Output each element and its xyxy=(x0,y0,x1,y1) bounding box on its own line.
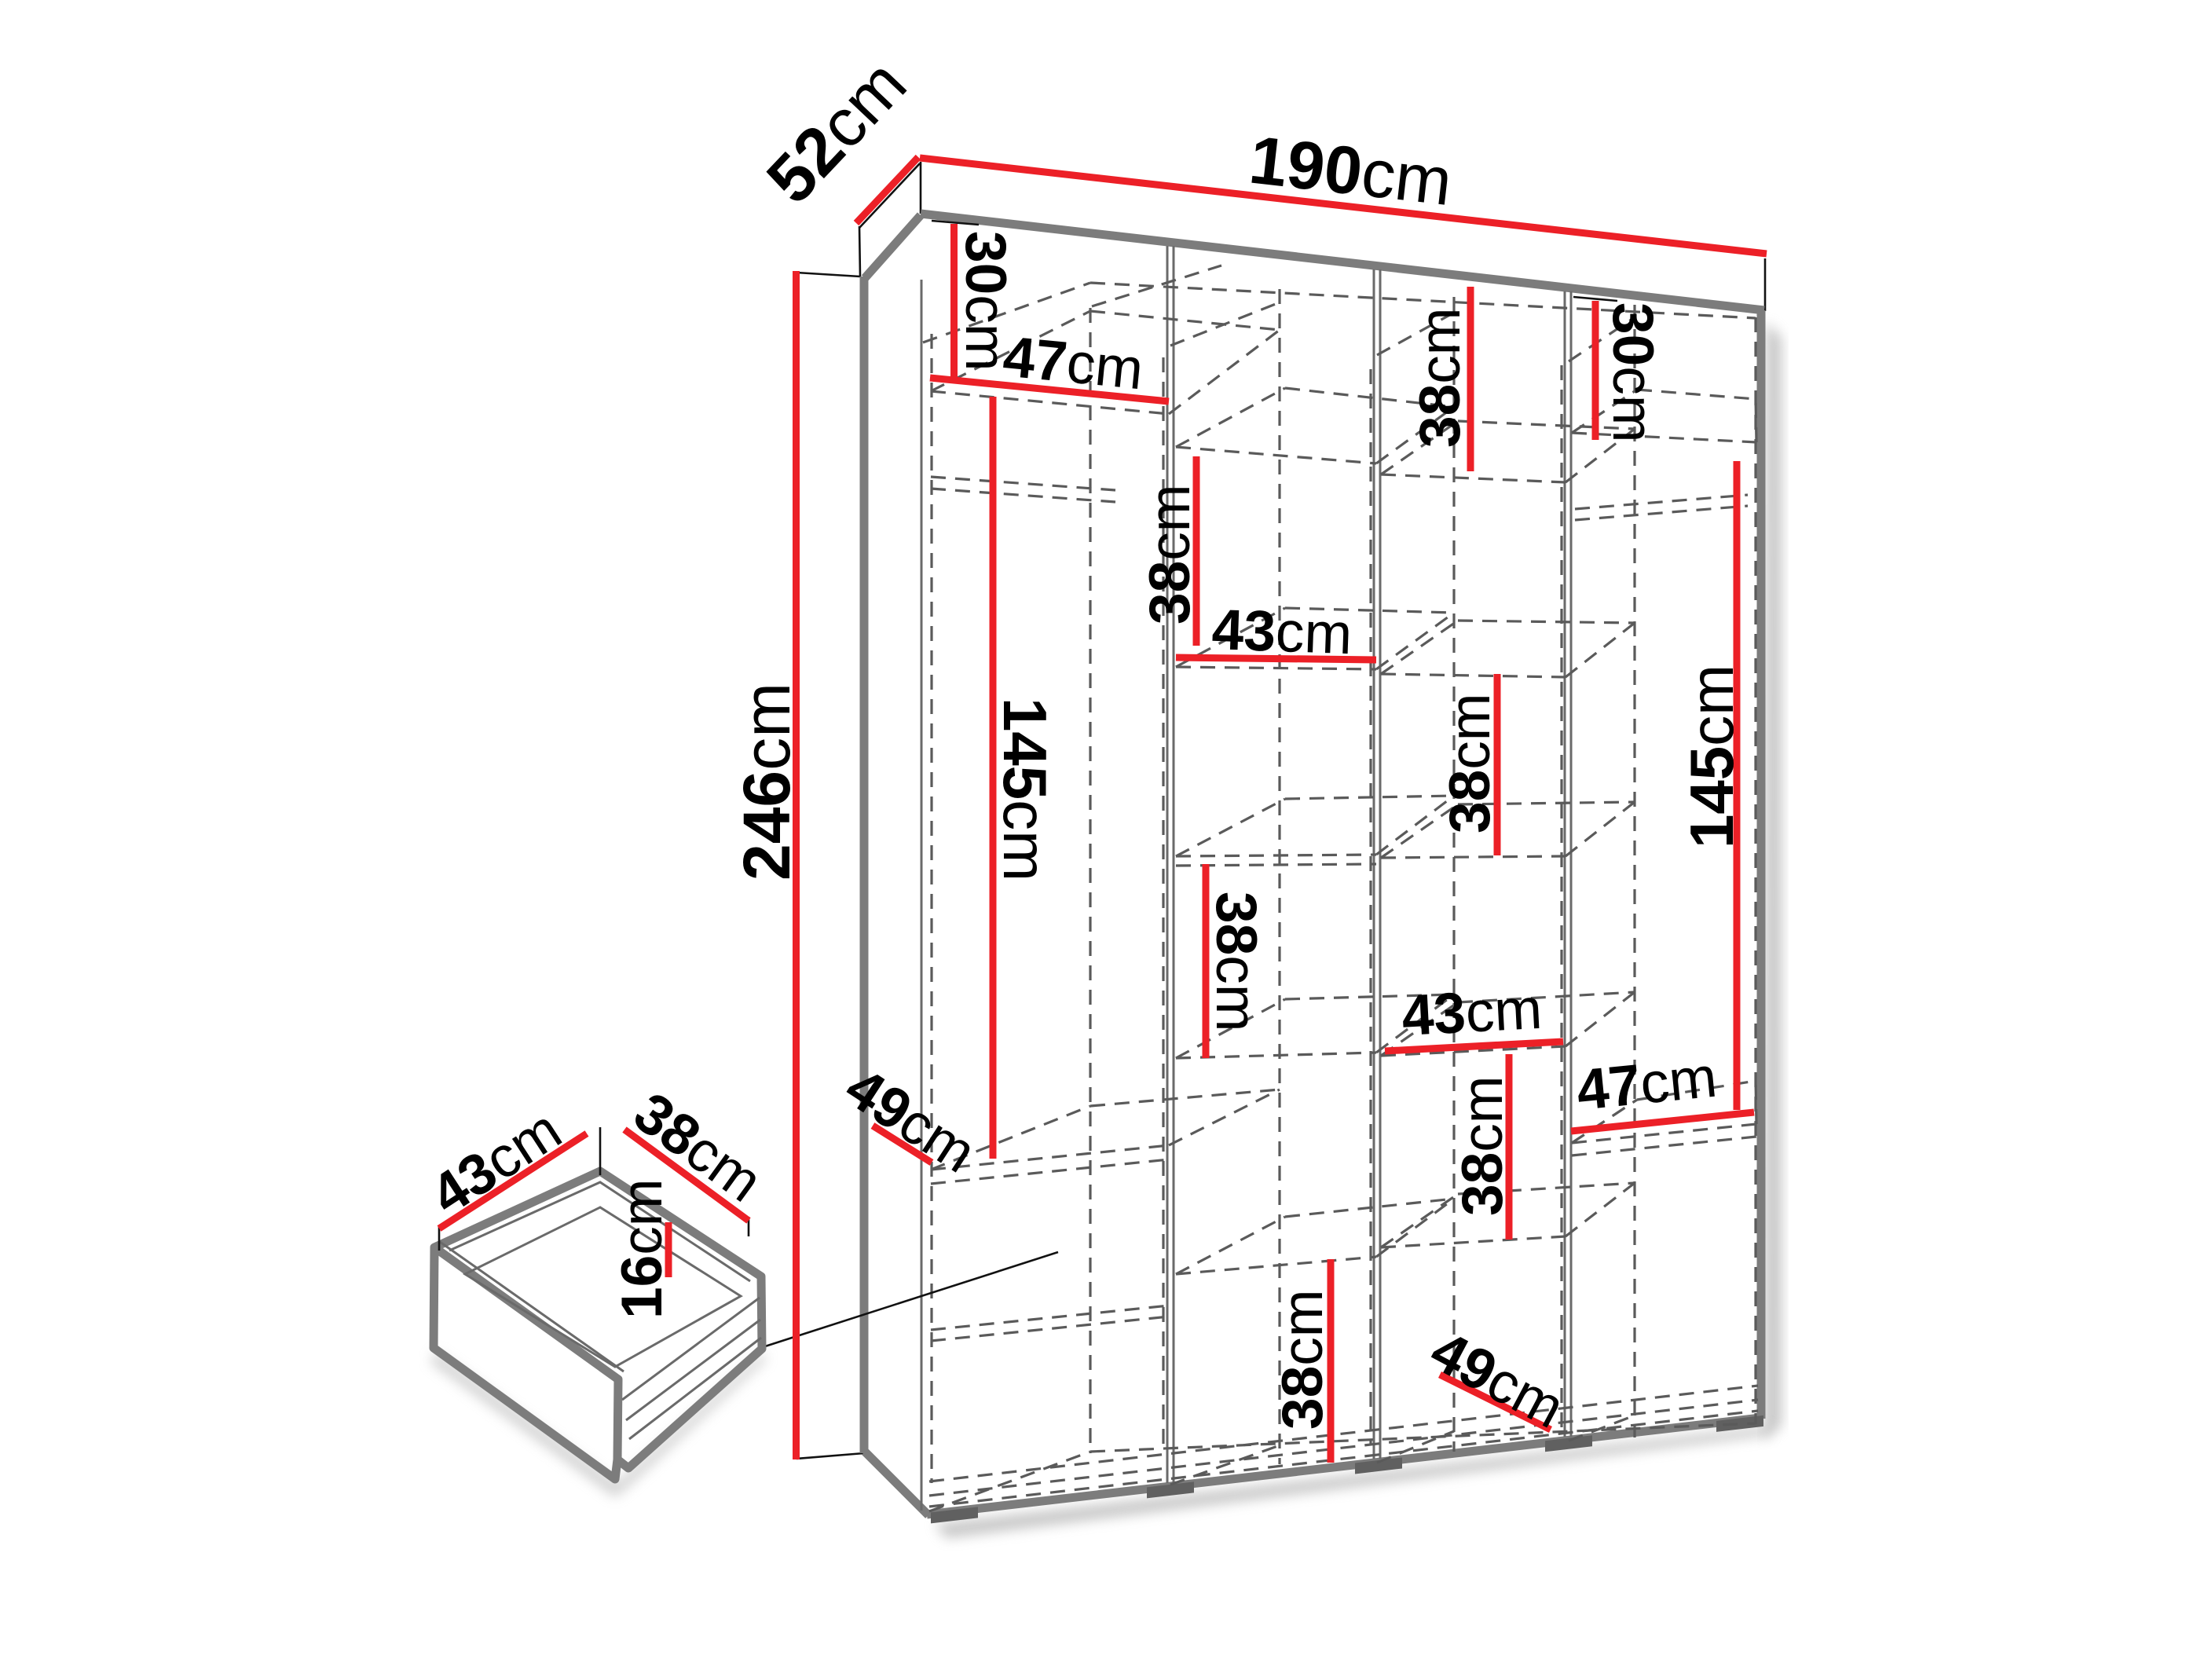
svg-text:38cm: 38cm xyxy=(1408,307,1472,448)
svg-text:38cm: 38cm xyxy=(1204,892,1268,1032)
svg-text:16cm: 16cm xyxy=(610,1178,674,1319)
svg-text:38cm: 38cm xyxy=(1271,1289,1335,1430)
svg-text:43cm: 43cm xyxy=(1401,977,1544,1048)
svg-text:145cm: 145cm xyxy=(991,698,1060,881)
svg-text:145cm: 145cm xyxy=(1677,665,1746,848)
svg-text:38cm: 38cm xyxy=(1451,1075,1514,1216)
svg-text:38cm: 38cm xyxy=(1138,484,1202,624)
svg-text:47cm: 47cm xyxy=(1000,324,1146,401)
svg-text:30cm: 30cm xyxy=(1601,302,1664,443)
svg-text:246cm: 246cm xyxy=(730,683,804,881)
svg-text:43cm: 43cm xyxy=(1210,598,1353,666)
svg-text:38cm: 38cm xyxy=(1438,693,1502,833)
